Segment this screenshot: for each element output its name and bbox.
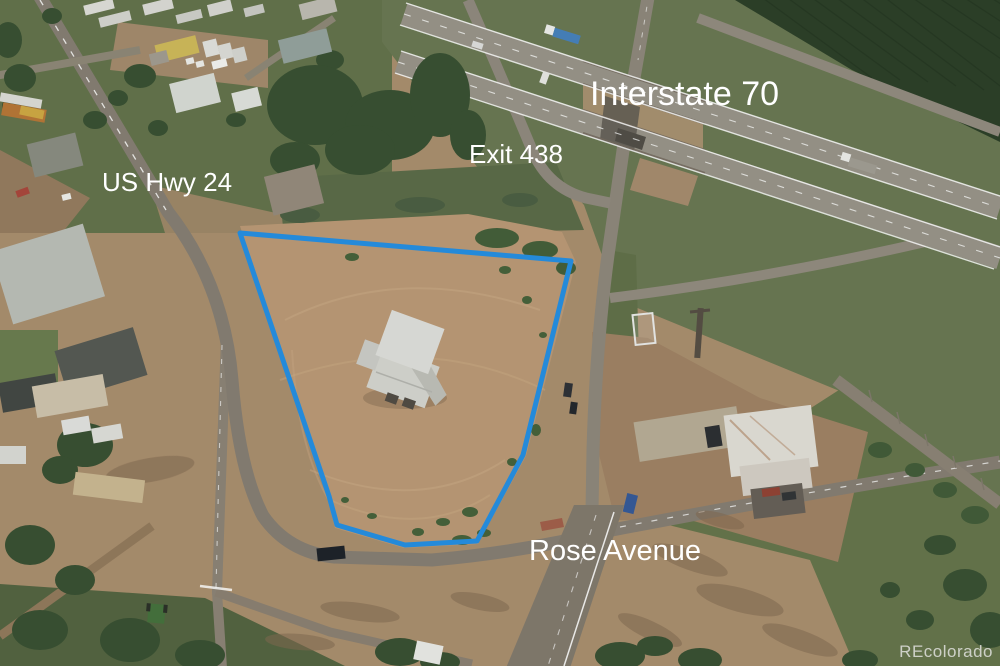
label-us-hwy-24: US Hwy 24 <box>102 169 232 195</box>
aerial-property-photo: Interstate 70 Exit 438 US Hwy 24 Rose Av… <box>0 0 1000 666</box>
haze-overlay <box>0 0 1000 666</box>
label-rose-avenue: Rose Avenue <box>529 537 701 566</box>
label-interstate-70: Interstate 70 <box>590 77 779 111</box>
watermark-recolorado: REcolorado <box>899 642 993 662</box>
aerial-scene <box>0 0 1000 666</box>
label-exit-438: Exit 438 <box>469 141 563 167</box>
